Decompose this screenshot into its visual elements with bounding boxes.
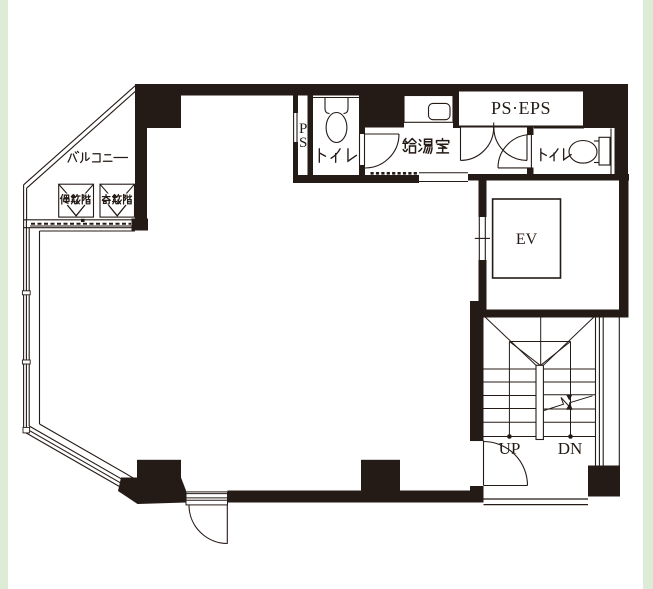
svg-text:DN: DN bbox=[558, 439, 583, 458]
svg-text:S: S bbox=[299, 135, 307, 151]
svg-text:PS·EPS: PS·EPS bbox=[491, 98, 551, 118]
svg-text:EV: EV bbox=[516, 231, 538, 248]
svg-text:UP: UP bbox=[499, 439, 521, 458]
